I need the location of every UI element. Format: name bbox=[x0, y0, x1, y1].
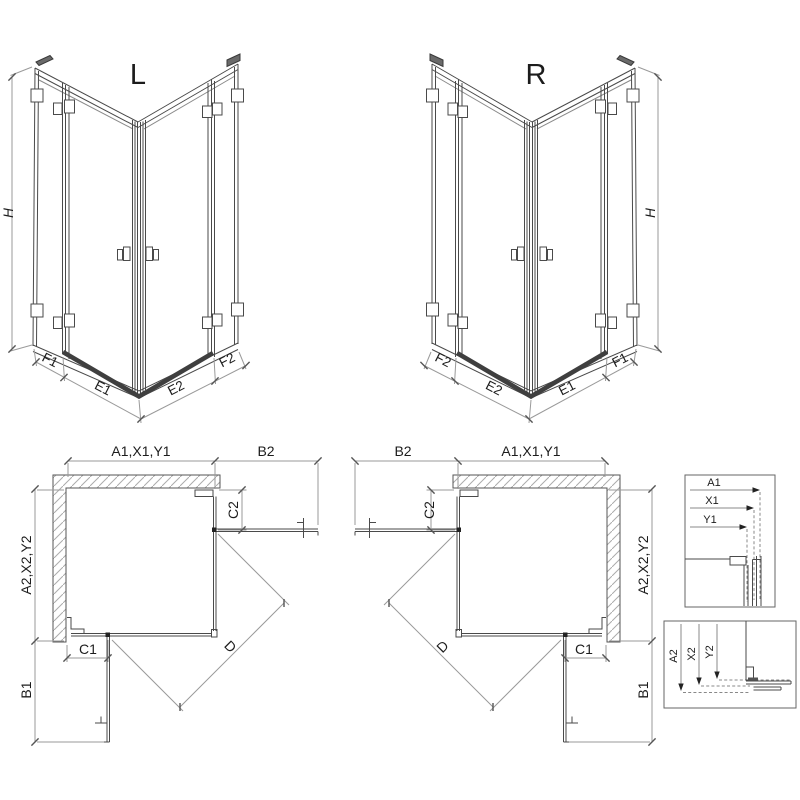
dim-label-f1-iso-left: F1 bbox=[40, 350, 61, 371]
detail-label-x1: X1 bbox=[705, 495, 718, 507]
dim-label-a1x1y1-plan-left: A1,X1,Y1 bbox=[111, 443, 170, 459]
dim-label-a2x2y2-plan-left: A2,X2,Y2 bbox=[18, 535, 34, 594]
iso-right-view bbox=[420, 54, 661, 423]
drawing-svg: L H F1 E1 E2 F2 R H F2 E2 E1 F1 A1,X1,Y1… bbox=[0, 0, 800, 800]
detail-label-a1: A1 bbox=[707, 477, 720, 489]
dim-label-f2-iso-right: F2 bbox=[433, 350, 454, 371]
dim-label-f1-iso-right: F1 bbox=[610, 350, 631, 371]
view-label-right: R bbox=[526, 59, 547, 91]
detail-label-a2: A2 bbox=[668, 649, 680, 662]
shower-enclosure-technical-drawing: L H F1 E1 E2 F2 R H F2 E2 E1 F1 A1,X1,Y1… bbox=[0, 0, 800, 800]
dim-label-a2x2y2-plan-right: A2,X2,Y2 bbox=[635, 535, 651, 594]
wall-section-left-plan bbox=[53, 475, 220, 642]
plan-right-view bbox=[351, 457, 655, 745]
detail-label-x2: X2 bbox=[686, 647, 698, 660]
dim-label-b2-plan-left: B2 bbox=[257, 443, 274, 459]
dim-label-b2-plan-right: B2 bbox=[394, 443, 411, 459]
plan-left-view bbox=[31, 457, 321, 745]
dim-label-d-plan-right: D bbox=[433, 637, 451, 655]
detail-label-y2: Y2 bbox=[704, 645, 716, 658]
dim-label-f2-iso-left: F2 bbox=[217, 350, 238, 371]
detail-profile-bottom bbox=[664, 621, 796, 708]
dim-label-b1-plan-right: B1 bbox=[635, 681, 651, 698]
dim-label-b1-plan-left: B1 bbox=[18, 681, 34, 698]
wall-section-right-plan bbox=[453, 475, 620, 642]
detail-profile-top bbox=[685, 475, 775, 607]
dim-label-a1x1y1-plan-right: A1,X1,Y1 bbox=[501, 443, 560, 459]
dim-label-h-iso-left: H bbox=[1, 208, 16, 218]
detail-label-y1: Y1 bbox=[703, 514, 716, 526]
dim-label-d-plan-left: D bbox=[221, 637, 239, 655]
dim-label-h-iso-right: H bbox=[643, 208, 658, 218]
view-label-left: L bbox=[130, 59, 146, 91]
dim-label-c1-plan-right: C1 bbox=[575, 641, 593, 657]
dim-label-c2-plan-left: C2 bbox=[225, 501, 241, 519]
dim-label-c2-plan-right: C2 bbox=[421, 501, 437, 519]
iso-left-view bbox=[8, 54, 249, 423]
dim-label-c1-plan-left: C1 bbox=[79, 641, 97, 657]
